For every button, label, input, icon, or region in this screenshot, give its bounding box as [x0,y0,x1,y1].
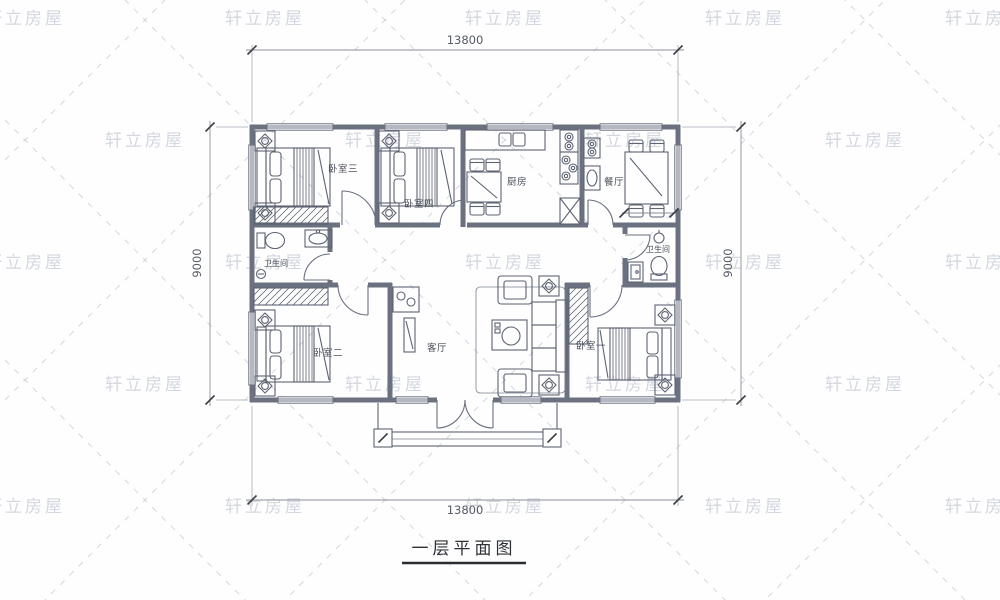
watermark-text: 轩立房屋 [705,9,785,29]
window [675,300,681,378]
porch [374,403,561,447]
toilet-icon [266,233,285,249]
room-label-kitchen: 厨房 [507,176,527,188]
room-label-bathroom-left: 卫生间 [264,258,288,268]
door-bathroom-left [304,254,330,280]
watermark-text: 轩立房屋 [945,253,1000,273]
bathroom-right-fixtures [628,230,667,282]
coffee-table-icon [492,320,527,350]
door-bedroom2 [338,285,368,315]
watermark-text: 轩立房屋 [465,9,545,29]
watermark-text: 轩立房屋 [585,131,665,151]
side-table-icon [539,276,559,296]
floor-plan-svg: 轩立房屋轩立房屋轩立房屋轩立房屋轩立房屋轩立房屋轩立房屋轩立房屋轩立房屋轩立房屋… [0,0,1000,600]
window [501,397,541,403]
plan-title: 一层平面图 [412,539,517,559]
window [675,145,681,210]
dimension-bottom: 13800 [246,406,684,517]
room-label-dining: 餐厅 [604,176,624,188]
watermark-text: 轩立房屋 [0,9,65,29]
watermark-text: 轩立房屋 [105,131,185,151]
rug [476,287,565,393]
dim-left-value: 9000 [190,248,204,277]
side-table-icon [539,375,559,395]
window [278,397,333,403]
room-label-bedroom4: 卧室四 [404,198,434,210]
tv-cabinet-icon [393,287,419,352]
entrance-double-door [437,400,493,428]
floor-plan-page: 轩立房屋轩立房屋轩立房屋轩立房屋轩立房屋轩立房屋轩立房屋轩立房屋轩立房屋轩立房屋… [0,0,1000,600]
shaft-icon [560,198,580,224]
watermark-text: 轩立房屋 [825,375,905,395]
watermark-text: 轩立房屋 [705,253,785,273]
window [249,145,255,210]
watermark-text: 轩立房屋 [0,497,65,517]
room-label-bedroom1: 卧室一 [576,340,606,352]
door-bedroom3 [342,191,376,225]
watermark-layer: 轩立房屋轩立房屋轩立房屋轩立房屋轩立房屋轩立房屋轩立房屋轩立房屋轩立房屋轩立房屋… [0,0,1000,600]
room-label-bedroom3: 卧室三 [328,163,358,175]
watermark-text: 轩立房屋 [105,375,185,395]
watermark-text: 轩立房屋 [465,253,545,273]
dim-right-value: 9000 [721,248,735,277]
watermark-text: 轩立房屋 [0,253,65,273]
wardrobe-icon [569,288,588,344]
room-label-living: 客厅 [427,342,447,354]
watermark-text: 轩立房屋 [225,9,305,29]
room-label-bedroom2: 卧室二 [313,347,343,359]
dim-bottom-value: 13800 [447,503,484,517]
window [487,124,553,130]
watermark-text: 轩立房屋 [945,497,1000,517]
watermark-text: 轩立房屋 [825,131,905,151]
door-dining [588,200,613,225]
window [385,124,447,130]
window [267,124,333,130]
dim-top-value: 13800 [447,33,484,47]
window [600,397,655,403]
watermark-text: 轩立房屋 [705,497,785,517]
watermark-text: 轩立房屋 [345,375,425,395]
window [396,397,428,403]
window [600,124,662,130]
toilet-icon [651,257,667,276]
armchair-icon [498,276,532,304]
room-label-bathroom-right: 卫生间 [646,244,670,254]
dimension-top: 13800 [246,33,684,122]
shower-icon [654,233,664,243]
watermark-text: 轩立房屋 [945,9,1000,29]
toilet-icon [257,233,265,248]
window [249,312,255,385]
